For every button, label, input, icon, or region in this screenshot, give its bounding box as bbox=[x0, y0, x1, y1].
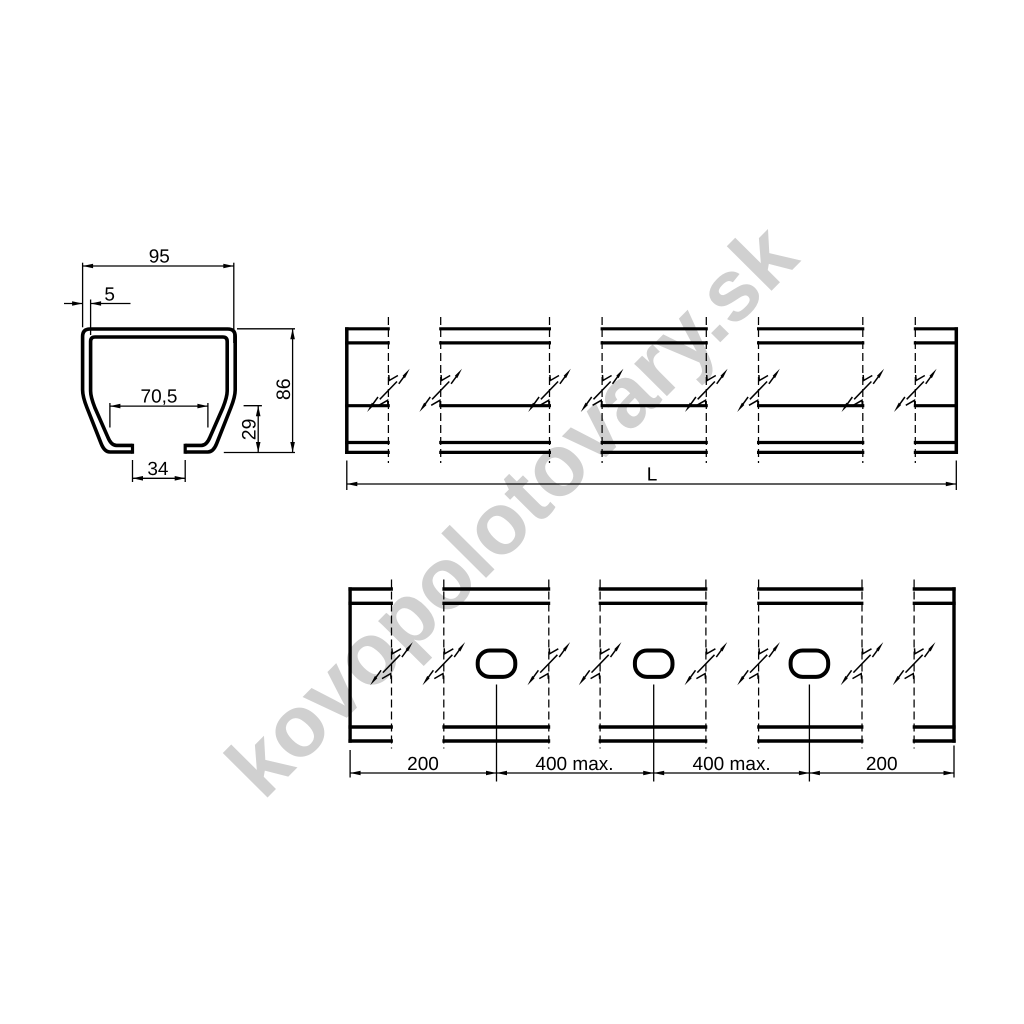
svg-text:L: L bbox=[647, 464, 658, 485]
svg-text:86: 86 bbox=[273, 378, 295, 400]
svg-text:29: 29 bbox=[239, 419, 261, 441]
svg-text:95: 95 bbox=[149, 246, 170, 267]
svg-text:70,5: 70,5 bbox=[141, 386, 178, 407]
svg-text:5: 5 bbox=[104, 284, 115, 305]
svg-text:kovopolotovary.sk: kovopolotovary.sk bbox=[208, 205, 815, 815]
svg-text:400 max.: 400 max. bbox=[693, 754, 771, 775]
svg-text:34: 34 bbox=[147, 459, 169, 480]
svg-text:200: 200 bbox=[866, 754, 898, 775]
svg-text:200: 200 bbox=[407, 754, 439, 775]
svg-text:400 max.: 400 max. bbox=[535, 754, 613, 775]
